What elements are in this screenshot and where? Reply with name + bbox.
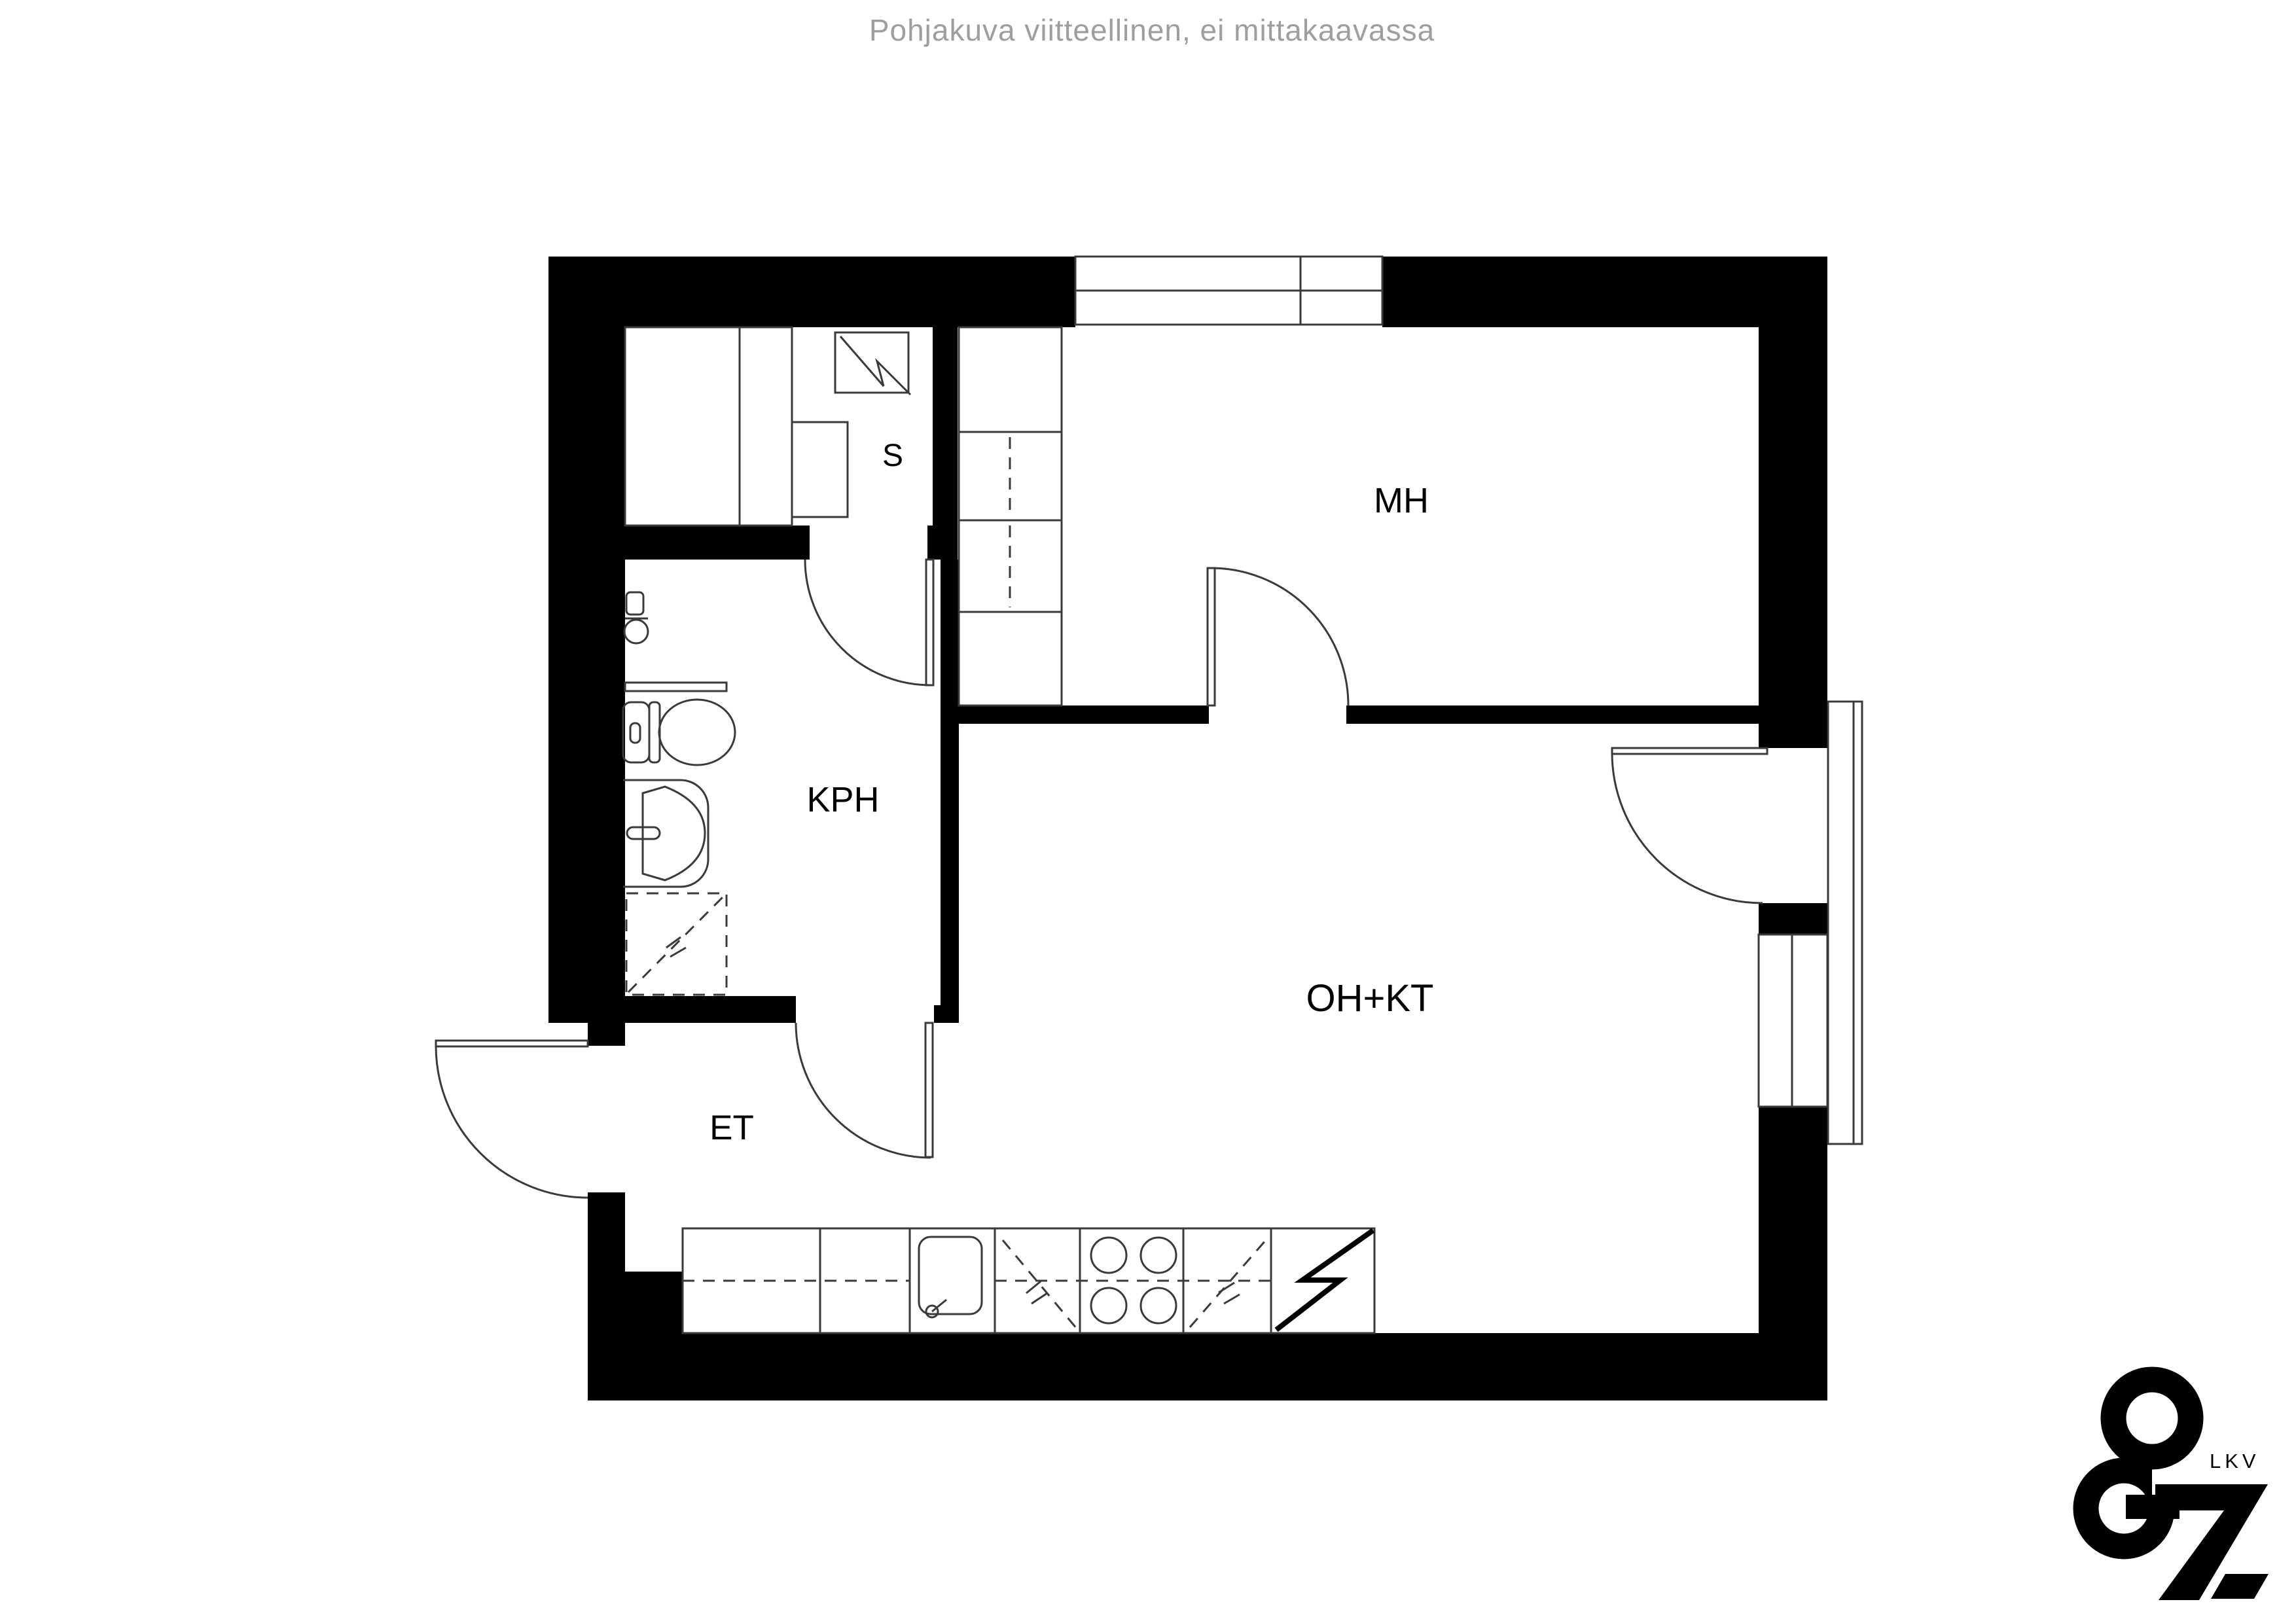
wardrobe-closets: [959, 327, 1062, 705]
sauna-stove-icon: [835, 332, 910, 395]
floor-plan-canvas: Pohjakuva viitteellinen, ei mittakaavass…: [0, 0, 2296, 1623]
appliance-reservation-icon: [1190, 1240, 1266, 1327]
room-label-bathroom: KPH: [806, 780, 879, 819]
kitchen-counter: [683, 1228, 1374, 1333]
shower-mixer-icon: [624, 592, 648, 643]
balcony-door: [1612, 748, 1767, 903]
room-label-entry: ET: [709, 1109, 754, 1147]
refrigerator-icon: [1276, 1230, 1373, 1330]
room-labels: S KPH ET MH OH+KT: [709, 438, 1433, 1147]
room-label-sauna: S: [882, 438, 903, 473]
room-label-living-kitchen: OH+KT: [1306, 977, 1434, 1020]
agency-logo: LKV: [2086, 1380, 2269, 1600]
bedroom-door: [1208, 568, 1348, 705]
sauna-benches: [625, 327, 848, 526]
right-window: [1759, 935, 1827, 1107]
logo-g7-mark: [2086, 1380, 2269, 1600]
dishwasher-reservation-icon: [1003, 1240, 1077, 1329]
sauna-door: [805, 560, 933, 685]
washbasin-icon: [623, 780, 708, 887]
balcony-slab: [1828, 702, 1862, 1144]
washing-machine-reservation: [626, 893, 726, 995]
interior-walls: [625, 327, 1759, 1023]
bathroom-door: [796, 1023, 933, 1158]
room-label-bedroom: MH: [1374, 481, 1429, 520]
disclaimer-text: Pohjakuva viitteellinen, ei mittakaavass…: [869, 13, 1435, 47]
kitchen-sink-icon: [919, 1237, 982, 1317]
entry-door: [436, 1041, 588, 1198]
logo-lkv-text: LKV: [2210, 1450, 2260, 1472]
toilet-icon: [623, 683, 735, 765]
top-window-niche: [1075, 257, 1382, 325]
